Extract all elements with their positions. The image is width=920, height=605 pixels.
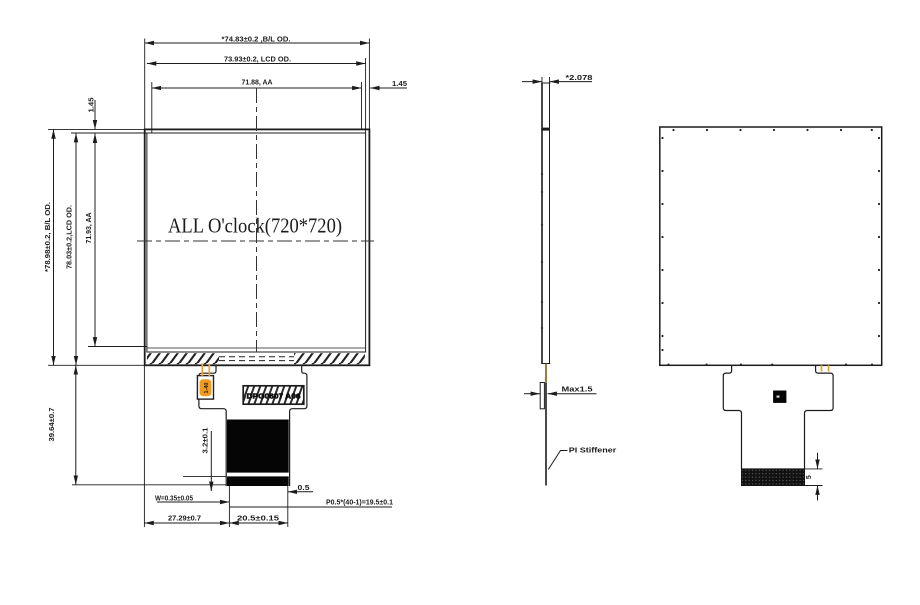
- svg-text:Max1.5: Max1.5: [562, 387, 593, 394]
- svg-text:*74.83±0.2 ,B/L OD.: *74.83±0.2 ,B/L OD.: [222, 37, 291, 44]
- svg-text:78.03±0.2,LCD OD.: 78.03±0.2,LCD OD.: [67, 205, 74, 269]
- svg-text:PI Stiffener: PI Stiffener: [569, 448, 617, 455]
- svg-text:P0.5*(40-1)=19.5±0.1: P0.5*(40-1)=19.5±0.1: [326, 500, 393, 507]
- svg-text:27.29±0.7: 27.29±0.7: [168, 516, 201, 523]
- svg-text:71.93, AA: 71.93, AA: [86, 213, 93, 244]
- svg-text:73.93±0.2, LCD OD.: 73.93±0.2, LCD OD.: [224, 57, 291, 64]
- svg-text:20.5±0.15: 20.5±0.15: [237, 516, 279, 523]
- svg-text:39.64±0.7: 39.64±0.7: [49, 407, 56, 441]
- svg-text:W=0.35±0.05: W=0.35±0.05: [155, 496, 193, 503]
- svg-text:*2.078: *2.078: [566, 75, 593, 82]
- svg-text:0.5: 0.5: [298, 485, 310, 492]
- svg-text:1.45: 1.45: [89, 97, 96, 112]
- svg-text:*78.98±0.2, B/L OD.: *78.98±0.2, B/L OD.: [45, 202, 52, 272]
- svg-text:5: 5: [806, 475, 813, 479]
- svg-text:71.88, AA: 71.88, AA: [242, 80, 273, 87]
- svg-text:1-40: 1-40: [204, 382, 210, 393]
- svg-text:ALL O'clock(720*720): ALL O'clock(720*720): [168, 214, 342, 238]
- svg-text:1.45: 1.45: [392, 81, 407, 88]
- svg-text:3.2±0.1: 3.2±0.1: [203, 427, 210, 453]
- svg-text:DPG0607 A06: DPG0607 A06: [247, 392, 301, 401]
